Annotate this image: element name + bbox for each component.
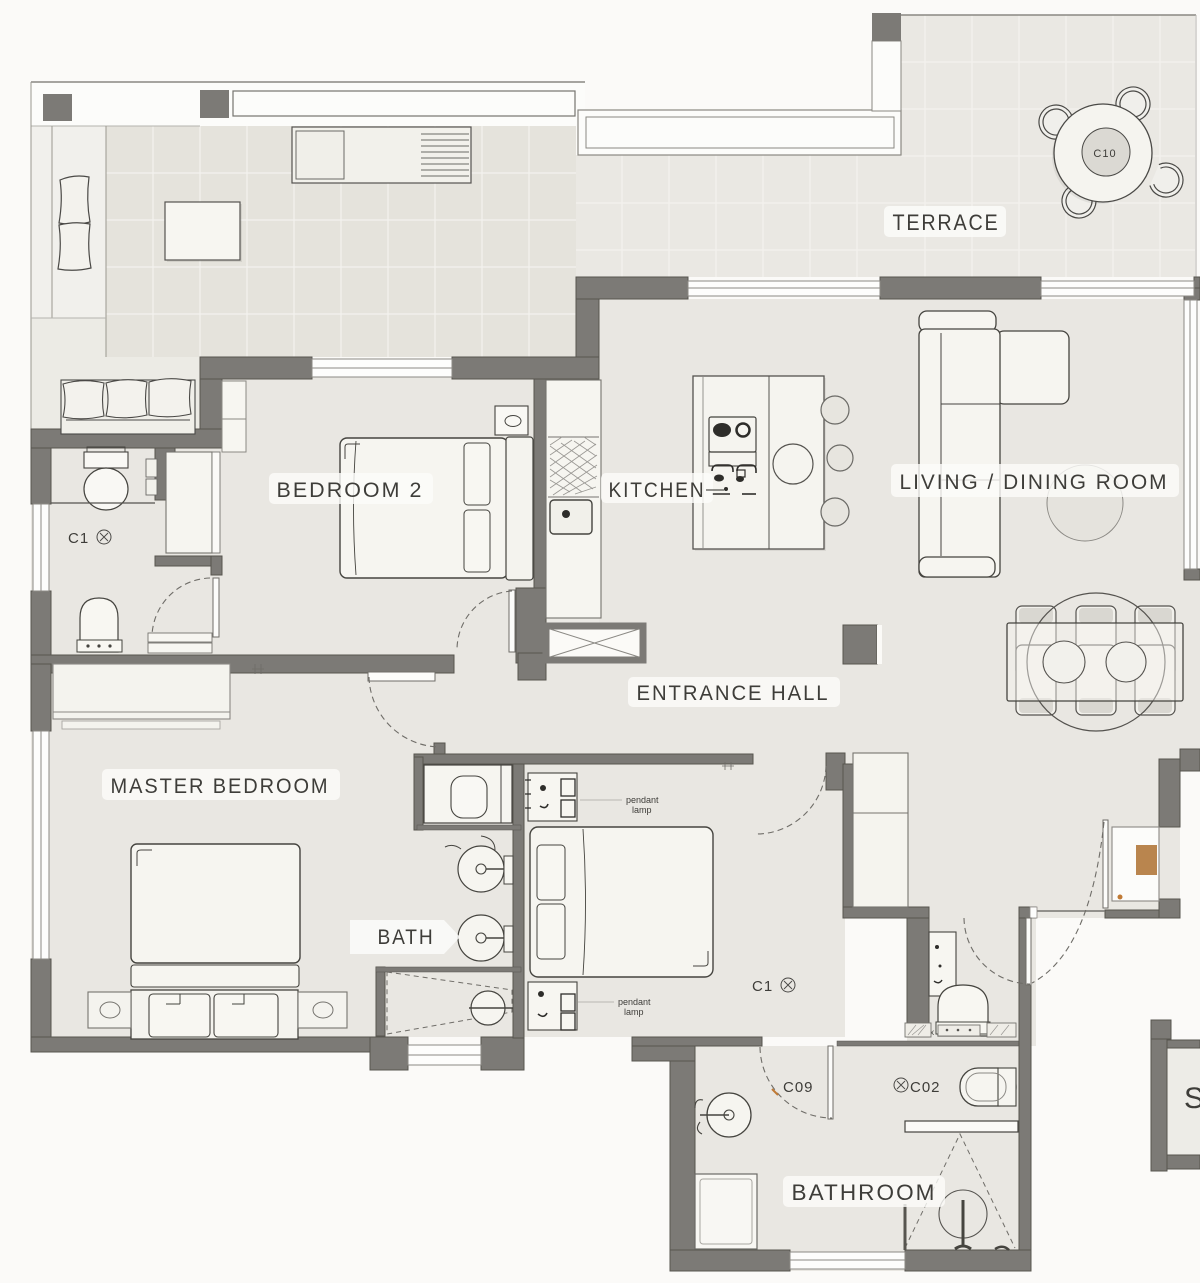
svg-text:C1: C1 — [68, 530, 89, 547]
svg-text:MASTER BEDROOM: MASTER BEDROOM — [111, 775, 330, 798]
svg-text:lamp: lamp — [624, 1007, 644, 1017]
svg-text:S: S — [1184, 1082, 1200, 1115]
svg-text:LIVING / DINING ROOM: LIVING / DINING ROOM — [900, 471, 1169, 494]
svg-text:TERRACE: TERRACE — [893, 210, 1000, 235]
svg-text:C10: C10 — [1093, 148, 1116, 160]
svg-text:pendant: pendant — [626, 795, 659, 805]
svg-text:BATHROOM: BATHROOM — [792, 1180, 937, 1205]
svg-text:C09: C09 — [783, 1079, 814, 1096]
svg-text:C02: C02 — [910, 1079, 941, 1096]
svg-text:KITCHEN: KITCHEN — [609, 479, 706, 502]
svg-text:ENTRANCE HALL: ENTRANCE HALL — [637, 682, 830, 705]
svg-text:C1: C1 — [752, 978, 773, 995]
svg-text:BEDROOM 2: BEDROOM 2 — [277, 479, 424, 502]
svg-text:pendant: pendant — [618, 997, 651, 1007]
svg-text:BATH: BATH — [378, 926, 435, 949]
svg-text:lamp: lamp — [632, 805, 652, 815]
